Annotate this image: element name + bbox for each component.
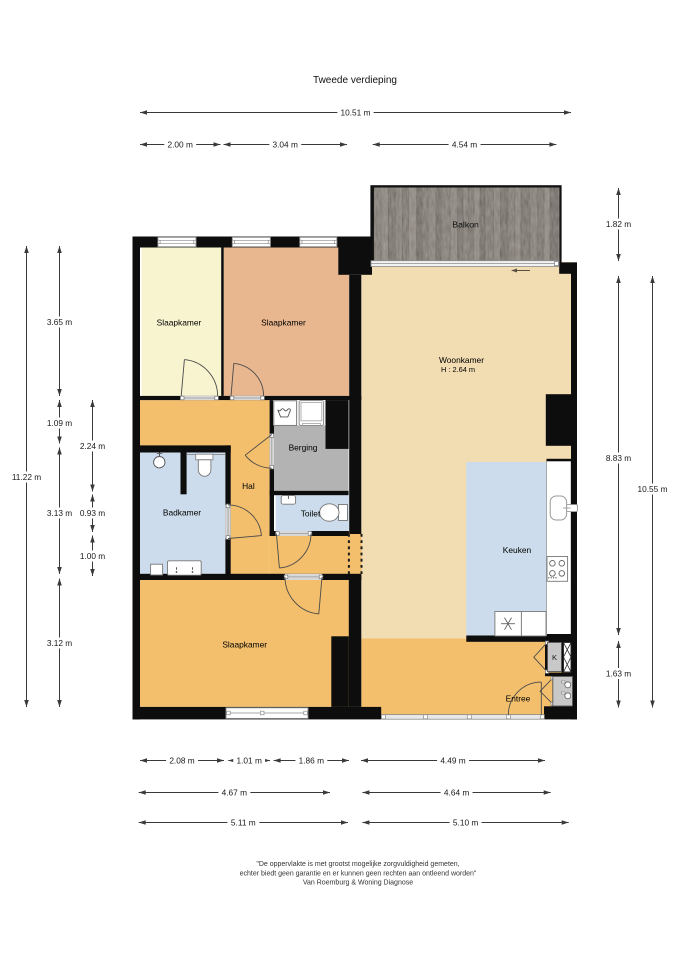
svg-text:Hal: Hal <box>242 481 255 491</box>
svg-text:0.93 m: 0.93 m <box>80 508 105 518</box>
svg-text:1.01 m: 1.01 m <box>237 756 262 766</box>
svg-text:8.83 m: 8.83 m <box>606 453 631 463</box>
svg-text:Woonkamer: Woonkamer <box>439 355 484 365</box>
svg-text:echter biedt geen garantie en: echter biedt geen garantie en er kunnen … <box>240 870 477 877</box>
svg-text:10.51 m: 10.51 m <box>341 108 371 118</box>
svg-text:2.08 m: 2.08 m <box>169 756 194 766</box>
svg-text:Slaapkamer: Slaapkamer <box>157 317 202 327</box>
svg-text:1.63 m: 1.63 m <box>606 669 631 679</box>
svg-text:H : 2.64 m: H : 2.64 m <box>441 365 475 374</box>
svg-text:K: K <box>552 653 557 662</box>
svg-text:3.65 m: 3.65 m <box>47 317 72 327</box>
svg-text:10.55 m: 10.55 m <box>638 484 668 494</box>
svg-text:3.04 m: 3.04 m <box>273 140 298 150</box>
svg-text:2.24 m: 2.24 m <box>80 441 105 451</box>
svg-text:5.10 m: 5.10 m <box>453 818 478 828</box>
svg-text:"De oppervlakte is met grootst: "De oppervlakte is met grootst mogelijke… <box>256 861 459 868</box>
svg-text:Keuken: Keuken <box>503 545 532 555</box>
svg-text:1.00 m: 1.00 m <box>80 551 105 561</box>
svg-text:Tweede verdieping: Tweede verdieping <box>313 75 397 86</box>
svg-text:4.67 m: 4.67 m <box>222 788 247 798</box>
svg-text:3.12 m: 3.12 m <box>47 638 72 648</box>
svg-text:1.09 m: 1.09 m <box>47 418 72 428</box>
svg-text:5.11 m: 5.11 m <box>231 818 256 828</box>
svg-text:4.49 m: 4.49 m <box>440 756 465 766</box>
svg-text:Berging: Berging <box>289 443 318 453</box>
svg-text:1.86 m: 1.86 m <box>299 756 324 766</box>
svg-text:Balkon: Balkon <box>452 220 479 230</box>
svg-text:Van Roemburg & Woning Diagnose: Van Roemburg & Woning Diagnose <box>303 880 413 887</box>
svg-text:1.82 m: 1.82 m <box>606 219 631 229</box>
svg-text:Slaapkamer: Slaapkamer <box>222 639 267 649</box>
svg-text:11.22 m: 11.22 m <box>12 472 41 482</box>
svg-text:Slaapkamer: Slaapkamer <box>261 317 306 327</box>
svg-text:3.13 m: 3.13 m <box>47 508 72 518</box>
svg-text:Entree: Entree <box>506 694 531 704</box>
svg-text:4.54 m: 4.54 m <box>452 140 477 150</box>
svg-text:Badkamer: Badkamer <box>163 508 201 518</box>
svg-text:Toilet: Toilet <box>301 509 321 519</box>
svg-text:2.00 m: 2.00 m <box>168 140 193 150</box>
svg-text:4.64 m: 4.64 m <box>444 788 469 798</box>
